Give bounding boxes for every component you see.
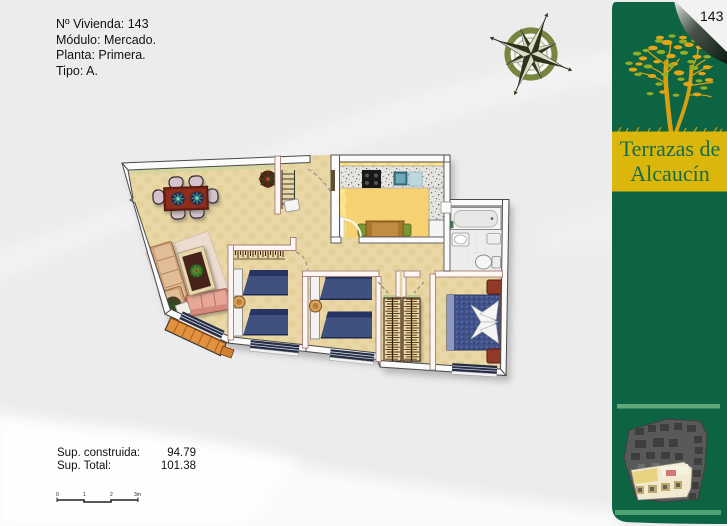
svg-text:143: 143	[700, 8, 724, 24]
svg-text:Terrazas de: Terrazas de	[620, 136, 720, 161]
svg-text:Alcaucín: Alcaucín	[630, 161, 709, 186]
